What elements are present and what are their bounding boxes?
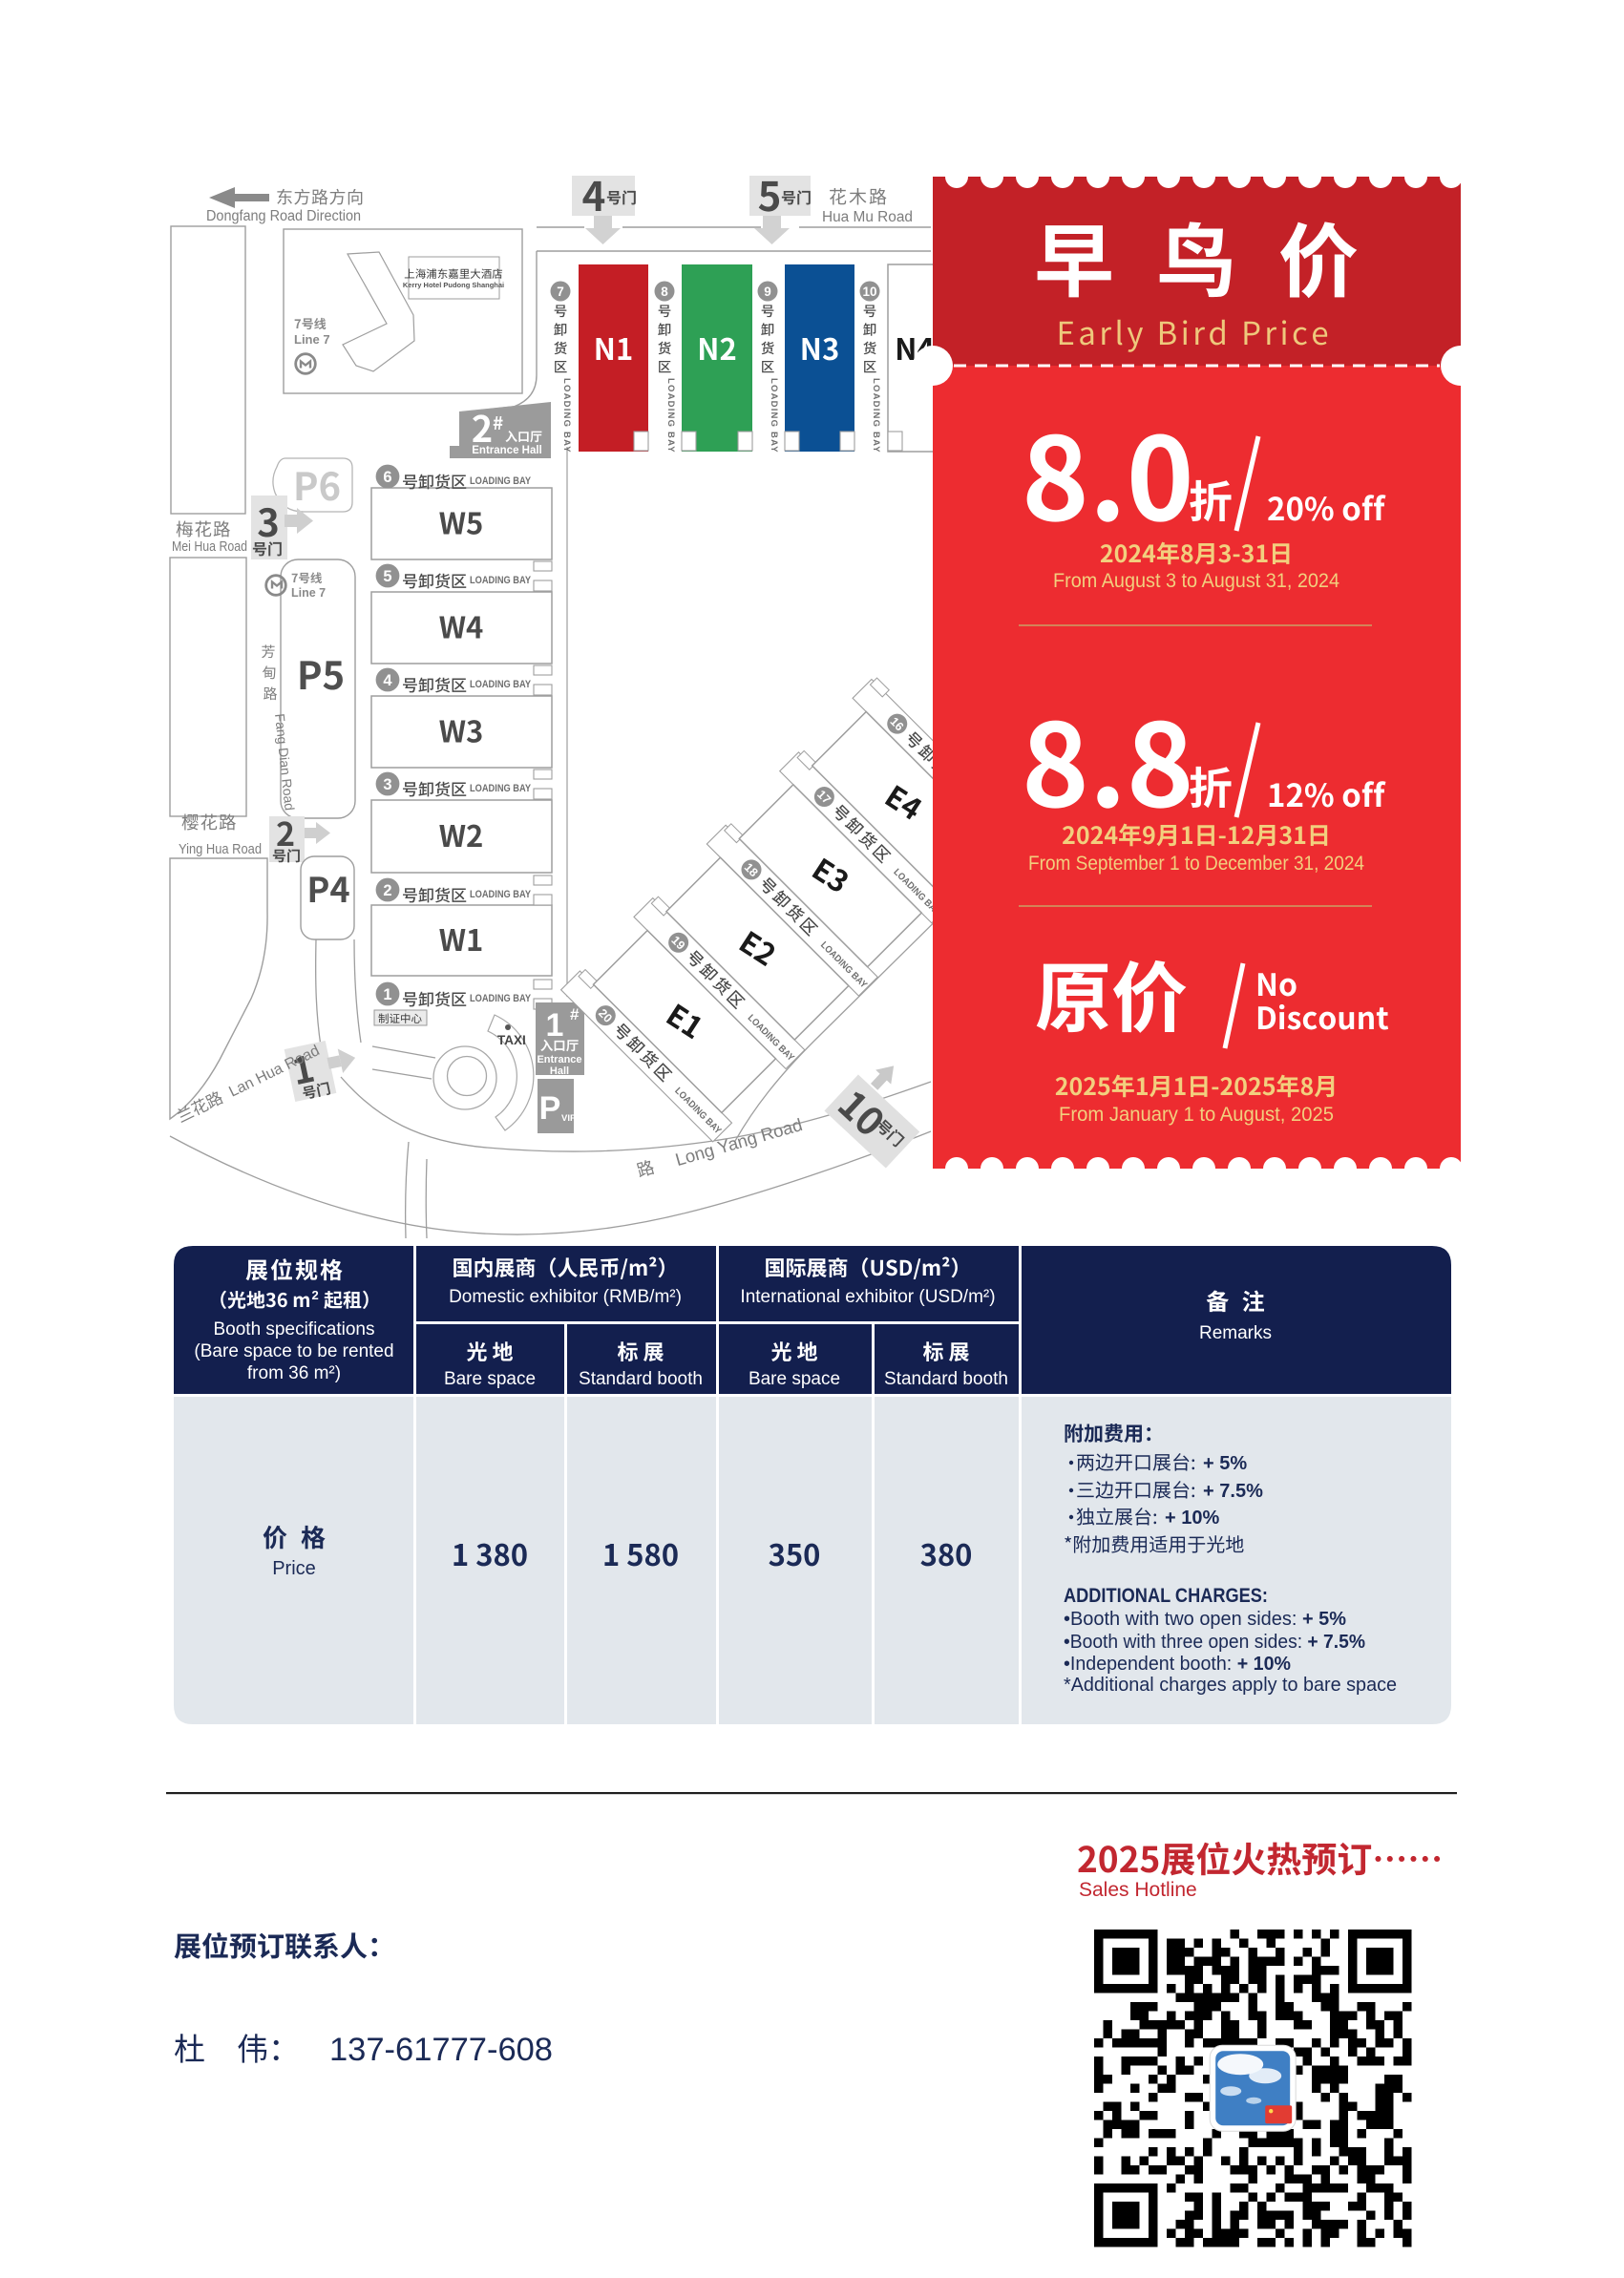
svg-text:Hall: Hall bbox=[550, 1065, 569, 1077]
svg-text:9: 9 bbox=[764, 285, 771, 299]
svg-text:Booth specifications: Booth specifications bbox=[214, 1319, 375, 1339]
svg-text:LOADING BAY: LOADING BAY bbox=[561, 378, 572, 453]
svg-text:LOADING BAY: LOADING BAY bbox=[769, 378, 779, 453]
svg-text:Entrance Hall: Entrance Hall bbox=[472, 445, 542, 456]
svg-text:Mei Hua Road: Mei Hua Road bbox=[172, 538, 247, 555]
svg-text:137-61777-608: 137-61777-608 bbox=[329, 2032, 553, 2068]
svg-text:from 36 m²): from 36 m²) bbox=[247, 1363, 341, 1383]
svg-text:LOADING BAY: LOADING BAY bbox=[470, 993, 532, 1004]
svg-text:1: 1 bbox=[546, 1007, 564, 1044]
svg-text:TAXI: TAXI bbox=[497, 1033, 526, 1047]
svg-text:LOADING BAY: LOADING BAY bbox=[470, 475, 532, 487]
svg-text:#: # bbox=[570, 1005, 580, 1023]
svg-text:•Booth with three open sides:: •Booth with three open sides: + 7.5% bbox=[1064, 1632, 1365, 1653]
svg-text:From January 1 to August, 2025: From January 1 to August, 2025 bbox=[1059, 1104, 1334, 1126]
svg-text:Dongfang Road Direction: Dongfang Road Direction bbox=[206, 208, 361, 224]
svg-text:8: 8 bbox=[661, 285, 668, 299]
svg-text:7: 7 bbox=[557, 285, 564, 299]
svg-text:LOADING BAY: LOADING BAY bbox=[470, 575, 532, 586]
svg-text:Ying Hua Road: Ying Hua Road bbox=[179, 841, 262, 857]
svg-text:Standard booth: Standard booth bbox=[884, 1369, 1008, 1389]
svg-text:LOADING BAY: LOADING BAY bbox=[871, 378, 881, 453]
svg-text:3: 3 bbox=[383, 776, 391, 793]
svg-text:LOADING BAY: LOADING BAY bbox=[470, 679, 532, 690]
svg-text:Standard booth: Standard booth bbox=[579, 1369, 703, 1389]
svg-text:2: 2 bbox=[383, 882, 391, 899]
svg-text:Bare space: Bare space bbox=[444, 1369, 536, 1389]
svg-text:Bare space: Bare space bbox=[749, 1369, 840, 1389]
svg-text:Remarks: Remarks bbox=[1199, 1323, 1272, 1343]
svg-text:LOADING BAY: LOADING BAY bbox=[665, 378, 676, 453]
svg-text:1: 1 bbox=[383, 986, 391, 1003]
svg-text:2: 2 bbox=[311, 1288, 318, 1302]
svg-text:ADDITIONAL CHARGES:: ADDITIONAL CHARGES: bbox=[1064, 1585, 1268, 1607]
svg-text:+ 10%: + 10% bbox=[1165, 1508, 1219, 1529]
svg-text:Price: Price bbox=[272, 1558, 316, 1579]
svg-text:Sales Hotline: Sales Hotline bbox=[1079, 1879, 1197, 1901]
svg-text:+ 7.5%: + 7.5% bbox=[1203, 1481, 1263, 1502]
svg-text:6: 6 bbox=[383, 469, 391, 486]
svg-text:From August 3 to August 31, 20: From August 3 to August 31, 2024 bbox=[1053, 570, 1339, 592]
svg-text:Long Yang Road: Long Yang Road bbox=[673, 1114, 805, 1170]
svg-text:Line 7: Line 7 bbox=[291, 586, 326, 600]
svg-text:Hua Mu Road: Hua Mu Road bbox=[822, 209, 913, 225]
svg-text:10: 10 bbox=[862, 285, 876, 299]
svg-text:Entrance: Entrance bbox=[537, 1054, 581, 1065]
svg-text:VIP: VIP bbox=[561, 1113, 577, 1124]
svg-text:LOADING BAY: LOADING BAY bbox=[470, 783, 532, 794]
svg-text:(Bare space to be rented: (Bare space to be rented bbox=[194, 1341, 393, 1361]
svg-text:International exhibitor (USD/m: International exhibitor (USD/m²) bbox=[740, 1287, 995, 1307]
svg-text:*Additional charges apply to b: *Additional charges apply to bare space bbox=[1064, 1675, 1397, 1696]
svg-text:Kerry Hotel Pudong Shanghai: Kerry Hotel Pudong Shanghai bbox=[403, 281, 504, 289]
svg-text:P: P bbox=[539, 1090, 561, 1127]
svg-text:LOADING BAY: LOADING BAY bbox=[470, 889, 532, 900]
svg-text:4: 4 bbox=[383, 672, 392, 689]
svg-text:5: 5 bbox=[383, 568, 391, 585]
svg-text:Line 7: Line 7 bbox=[294, 332, 330, 347]
svg-text:+ 5%: + 5% bbox=[1203, 1453, 1247, 1474]
svg-text:•Booth with two open sides: +: •Booth with two open sides: + 5% bbox=[1064, 1609, 1346, 1630]
svg-text:Domestic exhibitor (RMB/m²): Domestic exhibitor (RMB/m²) bbox=[449, 1287, 682, 1307]
svg-text:•Independent booth: + 10%: •Independent booth: + 10% bbox=[1064, 1654, 1291, 1675]
svg-text:From September 1 to December 3: From September 1 to December 31, 2024 bbox=[1028, 853, 1364, 875]
